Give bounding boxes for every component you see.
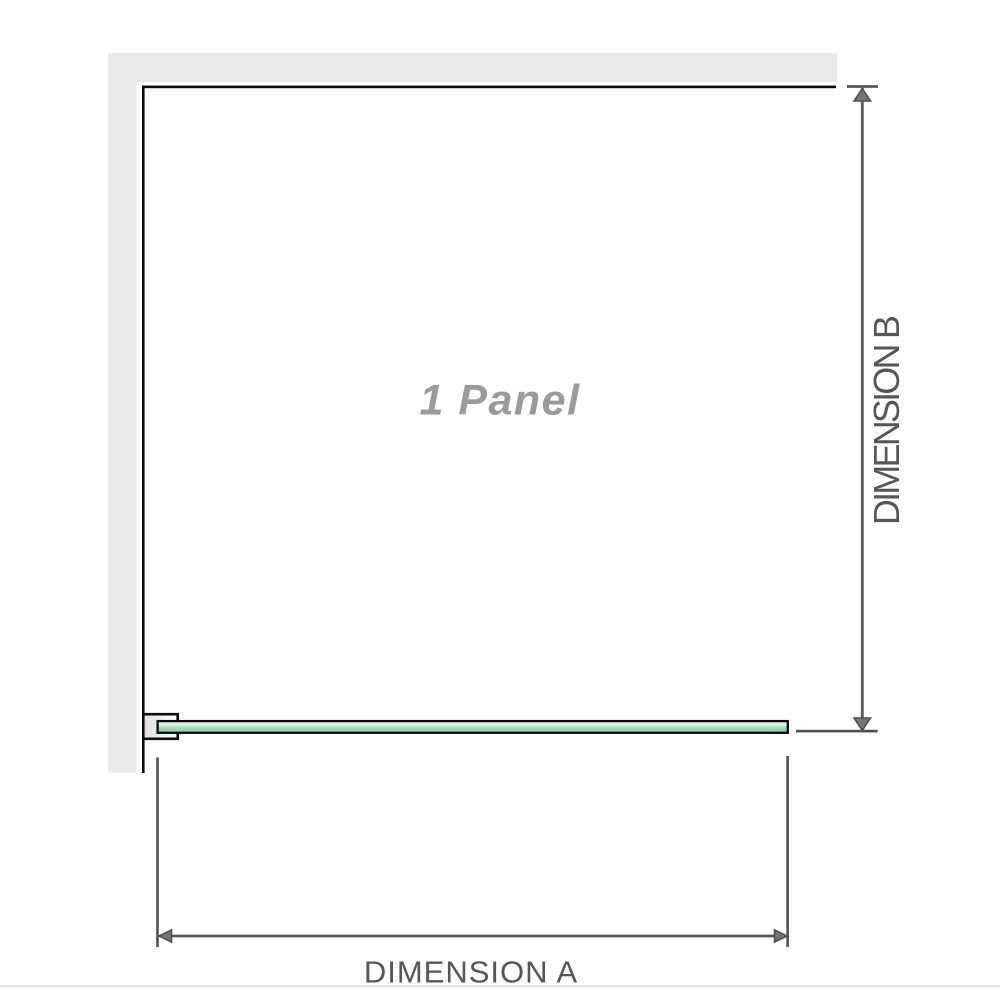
- svg-text:DIMENSION A: DIMENSION A: [364, 955, 578, 990]
- svg-text:DIMENSION B: DIMENSION B: [866, 316, 907, 525]
- svg-text:1 Panel: 1 Panel: [419, 377, 580, 425]
